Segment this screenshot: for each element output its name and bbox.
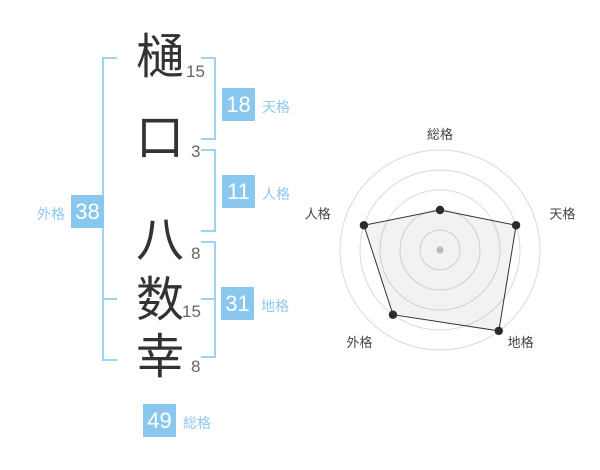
name-character-4: 数: [130, 276, 190, 326]
stroke-count-4: 15: [182, 302, 201, 322]
chikaku-label: 地格: [261, 296, 289, 316]
radar-axis-label: 地格: [508, 335, 534, 350]
stroke-count-2: 3: [191, 142, 200, 162]
chikaku-value-badge: 31: [221, 287, 254, 320]
bracket-tick: [201, 57, 214, 59]
bracket-tick: [201, 230, 214, 232]
name-character-3: 八: [130, 216, 190, 266]
gaikaku-value-badge: 38: [71, 195, 104, 228]
radar-axis-label: 外格: [346, 335, 372, 350]
jinkaku-value-badge: 11: [222, 175, 255, 208]
bracket-tick: [201, 356, 214, 358]
chikaku-bracket: [201, 241, 216, 358]
radar-vertex-dot: [360, 221, 368, 229]
radar-chart: 総格天格地格外格人格: [300, 110, 580, 360]
radar-axis-label: 天格: [549, 207, 575, 222]
name-character-2: 口: [130, 114, 190, 164]
radar-axis-label: 総格: [427, 127, 453, 142]
stroke-count-5: 8: [191, 357, 200, 377]
gaikaku-label: 外格: [37, 204, 65, 224]
soukaku-value-badge: 49: [143, 404, 176, 437]
gaikaku-bracket: [102, 57, 117, 361]
name-character-1: 樋: [130, 33, 190, 83]
jinkaku-bracket: [201, 149, 216, 232]
stroke-count-3: 8: [191, 244, 200, 264]
radar-data-polygon: [364, 210, 516, 331]
bracket-tick: [104, 298, 117, 300]
tenkaku-label: 天格: [262, 97, 290, 117]
soukaku-label: 総格: [183, 413, 211, 433]
name-fortune-screen: 樋 口 八 数 幸 15 3 8 15 8 18 天格 11 人格 31 地格 …: [0, 0, 600, 470]
bracket-tick: [201, 149, 214, 151]
radar-vertex-dot: [389, 311, 397, 319]
radar-vertex-dot: [436, 206, 444, 214]
jinkaku-label: 人格: [262, 184, 290, 204]
bracket-tick: [201, 138, 214, 140]
bracket-tick: [201, 298, 214, 300]
name-character-5: 幸: [130, 333, 190, 383]
bracket-tick: [104, 359, 117, 361]
bracket-tick: [201, 241, 214, 243]
tenkaku-bracket: [201, 57, 216, 140]
tenkaku-value-badge: 18: [222, 88, 255, 121]
radar-vertex-dot: [512, 221, 520, 229]
radar-vertex-dot: [495, 327, 503, 335]
radar-axis-label: 人格: [305, 207, 331, 222]
bracket-tick: [104, 57, 117, 59]
